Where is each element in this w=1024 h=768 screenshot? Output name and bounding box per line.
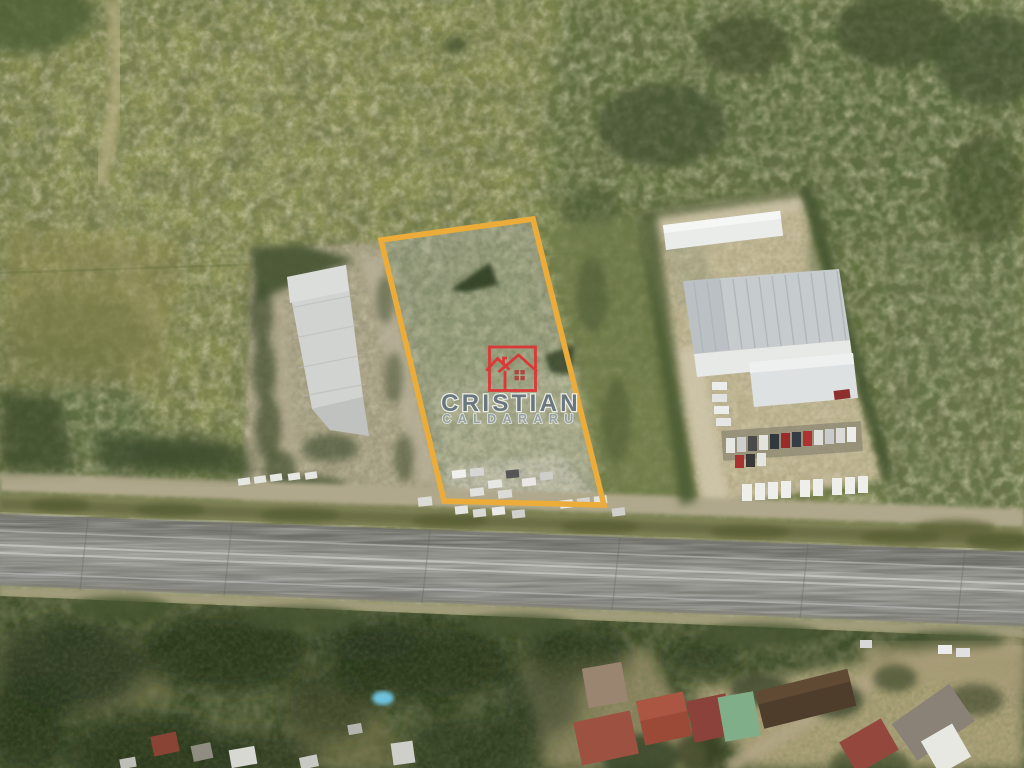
svg-text:CALDARARU: CALDARARU	[442, 412, 579, 426]
